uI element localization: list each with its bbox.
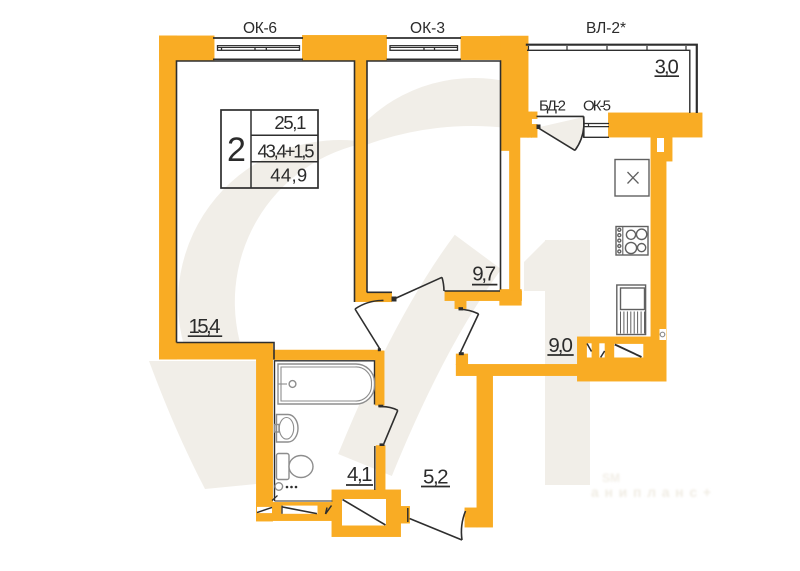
svg-text:15,4: 15,4 xyxy=(189,315,221,338)
svg-text:SM: SM xyxy=(602,471,620,485)
svg-text:2: 2 xyxy=(227,131,246,169)
svg-text:44,9: 44,9 xyxy=(270,165,307,186)
svg-text:3,0: 3,0 xyxy=(655,56,679,78)
svg-text:анипланс+: анипланс+ xyxy=(591,484,711,500)
svg-text:25,1: 25,1 xyxy=(274,112,306,133)
svg-text:ВЛ-2*: ВЛ-2* xyxy=(586,20,626,37)
svg-text:9,0: 9,0 xyxy=(548,334,573,357)
svg-text:ОК-3: ОК-3 xyxy=(410,20,445,37)
svg-text:4,1: 4,1 xyxy=(347,463,373,486)
svg-text:9,7: 9,7 xyxy=(472,262,496,285)
svg-text:43,4+1,5: 43,4+1,5 xyxy=(258,141,315,162)
svg-text:БД-2: БД-2 xyxy=(539,98,566,115)
svg-text:5,2: 5,2 xyxy=(423,466,449,489)
svg-text:ОК-6: ОК-6 xyxy=(243,20,277,37)
svg-text:ОК-5: ОК-5 xyxy=(583,98,611,115)
